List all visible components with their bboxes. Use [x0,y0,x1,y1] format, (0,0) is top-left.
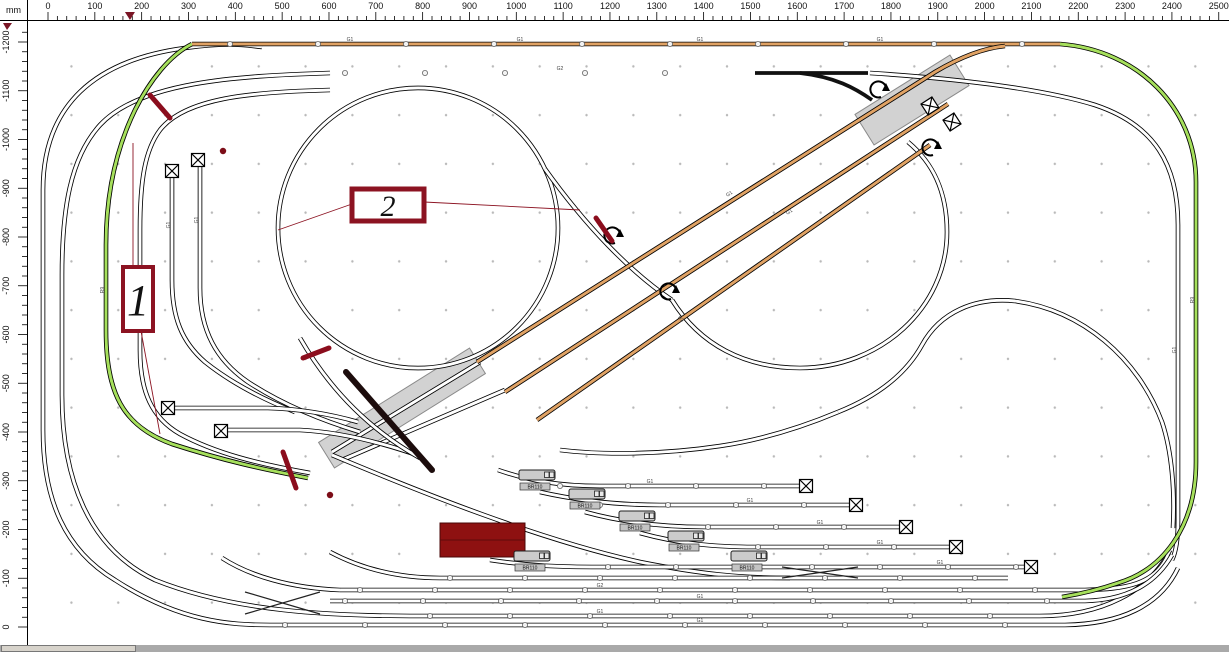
rail-joiner [755,41,760,46]
rail-joiner [897,575,902,580]
svg-text:900: 900 [462,1,477,11]
rail-joiner [282,622,287,627]
track-part-label: G1 [347,37,354,43]
rail-joiner [667,613,672,618]
rail-joiner [762,622,767,627]
track-part-label: G1 [877,37,884,43]
rail-joiner [882,587,887,592]
rail-joiner [693,483,698,488]
rail-joiner [582,587,587,592]
svg-text:-1000: -1000 [1,128,11,151]
track-part-label: G1 [747,498,754,504]
rail-joiner [907,613,912,618]
rail-joiner [357,587,362,592]
track-white[interactable] [222,558,340,590]
svg-text:400: 400 [228,1,243,11]
rail-joiner [810,598,815,603]
svg-text:200: 200 [134,1,149,11]
svg-text:300: 300 [181,1,196,11]
svg-text:1300: 1300 [647,1,667,11]
point-mark[interactable] [220,148,226,154]
rail-joiner [807,587,812,592]
rail-joiner [987,613,992,618]
callout-number: 2 [381,190,396,223]
rail-joiner [755,544,760,549]
track-part-label: R9 [100,287,106,294]
track-part-label: G1 [877,540,884,546]
rail-joiner [576,598,581,603]
rail-joiner [945,564,950,569]
rail-joiner [922,622,927,627]
svg-text:-900: -900 [1,179,11,197]
track-part-label: G2 [557,66,564,72]
rail-joiner [315,41,320,46]
rail-joiner [732,587,737,592]
rail-joiner [1013,564,1018,569]
rail-joiner [823,544,828,549]
rail-joiner [957,587,962,592]
svg-text:-300: -300 [1,472,11,490]
svg-text:800: 800 [415,1,430,11]
svg-text:-100: -100 [1,569,11,587]
svg-text:1000: 1000 [506,1,526,11]
rail-joiner [966,598,971,603]
rail-joiner [602,622,607,627]
track-white[interactable] [278,88,558,368]
rail-joiner [579,41,584,46]
svg-text:1500: 1500 [740,1,760,11]
horizontal-scrollbar[interactable] [0,645,1229,652]
rail-joiner [732,598,737,603]
locomotive[interactable]: BR110 [519,470,555,490]
svg-text:700: 700 [368,1,383,11]
rail-joiner [662,70,667,75]
loco-label: BR110 [523,565,538,571]
loco-label: BR110 [740,565,755,571]
svg-text:-200: -200 [1,520,11,538]
rail-joiner [605,564,610,569]
track-white[interactable] [332,455,790,578]
svg-text:2000: 2000 [975,1,995,11]
callout-2[interactable]: 2 [278,189,580,230]
track-part-label: G2 [597,583,604,589]
track-part-label: G1 [1172,346,1178,353]
svg-text:1900: 1900 [928,1,948,11]
track-part-label: G1 [194,216,200,223]
vertical-ruler: 0-100-200-300-400-500-600-700-800-900-10… [0,21,28,652]
rail-joiner [673,564,678,569]
rail-joiner [1002,622,1007,627]
svg-text:-600: -600 [1,325,11,343]
track-outline [62,73,1170,616]
bumper-icon[interactable] [162,402,175,415]
svg-text:600: 600 [321,1,336,11]
rail-joiner [491,41,496,46]
track-white[interactable] [43,430,270,625]
rail-joiner [557,483,562,488]
rail-joiner [522,575,527,580]
svg-text:-500: -500 [1,374,11,392]
track-orange[interactable] [537,145,930,420]
rail-joiner [582,70,587,75]
rail-joiner [597,575,602,580]
rail-joiner [761,483,766,488]
svg-text:2500: 2500 [1209,1,1229,11]
scrollbar-thumb[interactable] [1,645,136,652]
rail-joiner [801,502,806,507]
rail-joiner [827,613,832,618]
svg-text:-800: -800 [1,228,11,246]
svg-text:2100: 2100 [1021,1,1041,11]
rail-joiner [773,524,778,529]
rail-joiner [1044,598,1049,603]
track-part-label: G1 [597,609,604,615]
track-part-label: G1 [647,479,654,485]
rail-joiner [747,575,752,580]
bumper-icon[interactable] [800,480,813,493]
rail-joiner [432,587,437,592]
rail-joiner [877,564,882,569]
track-outline [43,45,262,431]
locomotive[interactable]: BR110 [731,551,767,571]
svg-text:2300: 2300 [1115,1,1135,11]
rail-joiner [507,587,512,592]
bridge-section[interactable] [855,55,969,145]
rail-joiner [227,41,232,46]
callout-number: 1 [127,276,149,325]
track-white[interactable] [172,170,295,412]
locomotive[interactable]: BR110 [514,551,550,571]
track-part-label: G1 [166,221,172,228]
track-plan-window: BR110BR110BR110BR110BR110BR110G1G1G1G1G2… [0,0,1229,652]
loco-label: BR110 [578,503,593,509]
rail-joiner [362,622,367,627]
horizontal-ruler: 0100200300400500600700800900100011001200… [0,0,1229,21]
rail-joiner [1032,587,1037,592]
rail-joiner [342,70,347,75]
point-mark[interactable] [327,492,333,498]
loco-label: BR110 [628,525,643,531]
bumper-icon[interactable] [192,154,205,167]
track-part-label: G1 [517,37,524,43]
rail-joiner [498,598,503,603]
track-part-label: G1 [725,190,734,199]
rail-joiner [843,41,848,46]
track-outline [43,430,270,625]
track-part-label: G1 [697,37,704,43]
track-plan-canvas[interactable]: BR110BR110BR110BR110BR110BR110G1G1G1G1G2… [0,0,1229,652]
track-part-label: G1 [937,560,944,566]
bumper-icon[interactable] [1025,561,1038,574]
track-part-label: G1 [697,594,704,600]
svg-text:-700: -700 [1,277,11,295]
track-green[interactable] [106,44,308,478]
svg-text:0: 0 [45,1,50,11]
callout-leader-line [278,204,352,230]
track-part-label: G1 [817,520,824,526]
svg-text:1800: 1800 [881,1,901,11]
uncoupler-mark[interactable] [150,95,170,118]
bumper-icon[interactable] [943,113,961,131]
track-part-label: R9 [1190,297,1196,304]
track-white[interactable] [838,300,1174,528]
rail-joiner [682,622,687,627]
svg-text:1200: 1200 [600,1,620,11]
rail-joiner [809,564,814,569]
bumper-icon[interactable] [850,499,863,512]
svg-text:1100: 1100 [553,1,572,11]
svg-text:500: 500 [275,1,290,11]
rail-joiner [502,70,507,75]
track-white[interactable] [62,73,1170,616]
track-outline [222,558,340,590]
locomotive[interactable]: BR110 [619,511,655,531]
svg-text:1400: 1400 [694,1,714,11]
selected-track[interactable] [800,73,872,100]
bumper-icon[interactable] [900,521,913,534]
svg-text:1700: 1700 [834,1,854,11]
rail-joiner [733,502,738,507]
rail-joiner [842,622,847,627]
svg-text:-400: -400 [1,423,11,441]
rail-joiner [420,598,425,603]
rail-joiner [342,598,347,603]
svg-text:2400: 2400 [1162,1,1182,11]
rail-joiner [931,41,936,46]
track-outline [332,455,790,578]
svg-text:100: 100 [87,1,102,11]
rail-joiner [972,575,977,580]
rail-joiner [625,483,630,488]
rail-joiner [705,524,710,529]
loco-label: BR110 [677,545,692,551]
track-outline [838,300,1174,528]
rail-joiner [1019,41,1024,46]
svg-text:0: 0 [1,624,11,629]
track-white[interactable] [43,45,262,431]
rail-joiner [587,613,592,618]
rail-joiner [747,613,752,618]
rail-joiner [891,544,896,549]
rail-joiner [403,41,408,46]
svg-text:2200: 2200 [1068,1,1088,11]
ruler-unit-label: mm [0,0,28,21]
rail-joiner [665,502,670,507]
svg-text:1600: 1600 [787,1,807,11]
rail-joiner [841,524,846,529]
rail-joiner [667,41,672,46]
bumper-icon[interactable] [950,541,963,554]
track-part-label: G1 [697,618,704,624]
bumper-icon[interactable] [166,165,179,178]
locomotive[interactable]: BR110 [569,489,605,509]
rail-joiner [888,598,893,603]
rail-joiner [657,587,662,592]
rail-joiner [822,575,827,580]
svg-text:-1100: -1100 [1,80,11,102]
rail-joiner [422,70,427,75]
rail-joiner [654,598,659,603]
svg-text:-1200: -1200 [1,30,11,53]
rail-joiner [507,613,512,618]
track-outline [560,412,838,453]
rail-joiner [447,575,452,580]
locomotive[interactable]: BR110 [668,531,704,551]
rail-joiner [522,622,527,627]
rail-joiner [427,613,432,618]
track-outline [172,170,295,412]
loco-label: BR110 [528,484,543,490]
bumper-icon[interactable] [215,425,228,438]
rail-joiner [442,622,447,627]
rail-joiner [672,575,677,580]
